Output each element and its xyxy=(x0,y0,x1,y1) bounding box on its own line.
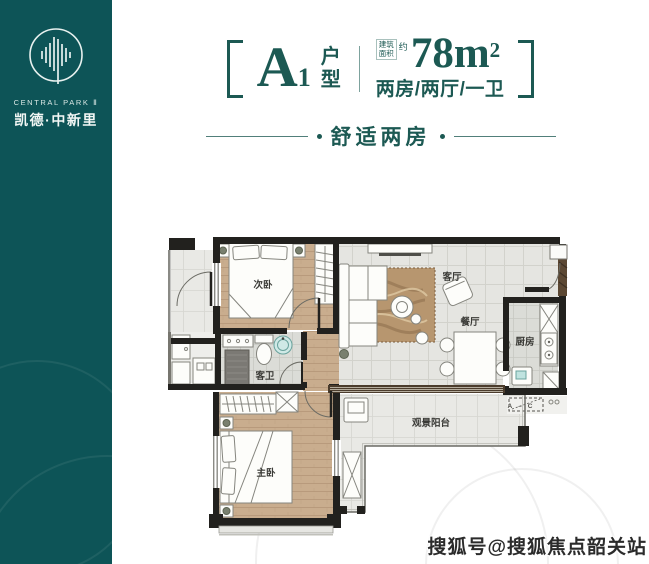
label-living-room: 客厅 xyxy=(441,271,462,283)
label-ac-platform: A–C xyxy=(507,403,538,410)
washbasin xyxy=(274,336,292,354)
brand-logo: CENTRAL PARK Ⅱ 凯德·中新里 xyxy=(0,26,112,130)
entry-door-panel xyxy=(550,245,567,259)
plant-icon xyxy=(223,420,230,427)
brand-name-en: CENTRAL PARK Ⅱ xyxy=(0,98,112,107)
label-kitchen: 厨房 xyxy=(515,336,534,348)
tagline-dot-right xyxy=(440,134,445,139)
unit-title-row: A1 户型 建筑面积 约 78m2 两房/两厅/一卫 xyxy=(112,36,649,101)
plant-icon xyxy=(223,508,230,515)
brand-band: CENTRAL PARK Ⅱ 凯德·中新里 xyxy=(0,0,112,564)
dining-chair xyxy=(440,338,454,352)
area-row: 建筑面积 约 78m2 xyxy=(376,36,505,71)
tv-console xyxy=(368,244,432,253)
area-approx-label: 约 xyxy=(399,40,408,53)
page: CENTRAL PARK Ⅱ 凯德·中新里 A1 户型 建筑面积 约 78m2 … xyxy=(0,0,649,564)
balcony-sliding-door xyxy=(328,385,505,393)
tagline-dot-left xyxy=(317,134,322,139)
header-divider xyxy=(359,46,360,92)
unit-type-label: 户型 xyxy=(319,46,343,91)
label-view-balcony: 观景阳台 xyxy=(411,417,451,429)
label-secondary-bedroom: 次卧 xyxy=(253,279,273,291)
room-spec: 两房/两厅/一卫 xyxy=(376,74,505,101)
side-stool xyxy=(416,332,428,344)
plant-icon xyxy=(220,247,227,254)
tv xyxy=(379,253,421,256)
tagline-rule-left xyxy=(206,136,308,137)
tagline-row: 舒适两房 xyxy=(112,121,649,151)
dining-table xyxy=(454,332,496,384)
master-bedroom-furniture xyxy=(220,392,298,517)
stove xyxy=(541,333,557,364)
toilet xyxy=(255,335,273,365)
bed xyxy=(220,431,292,503)
right-bracket-decoration xyxy=(518,40,534,98)
plant-icon xyxy=(340,350,349,359)
unit-index: 1 xyxy=(298,63,311,92)
left-bracket-decoration xyxy=(227,40,243,98)
washing-machine xyxy=(193,358,215,384)
tagline-text: 舒适两房 xyxy=(331,121,431,151)
area-value: 78m2 xyxy=(411,36,500,71)
wardrobe xyxy=(315,244,335,304)
plant-icon xyxy=(296,247,303,254)
dining-chair xyxy=(440,362,454,376)
area-superscript: 2 xyxy=(490,38,501,62)
entry-door xyxy=(525,287,549,292)
floor-plan-drawing: 次卧 客厅 餐厅 厨房 客卫 主卧 观景阳台 A–C xyxy=(163,228,603,538)
area-prefix-label: 建筑面积 xyxy=(376,39,397,60)
brand-name-cn: 凯德·中新里 xyxy=(0,110,112,130)
unit-header: A1 户型 建筑面积 约 78m2 两房/两厅/一卫 舒适两房 xyxy=(112,0,649,151)
label-dining-room: 餐厅 xyxy=(459,316,480,328)
label-guest-bathroom: 客卫 xyxy=(254,370,275,382)
watermark: 搜狐号@搜狐焦点韶关站 xyxy=(427,532,647,559)
brand-emblem-icon xyxy=(24,26,88,88)
wardrobe xyxy=(220,394,276,414)
coffee-table xyxy=(391,296,413,318)
unit-name: A1 xyxy=(257,42,311,94)
area-block: 建筑面积 约 78m2 两房/两厅/一卫 xyxy=(376,36,505,101)
unit-letter: A xyxy=(257,36,298,99)
tagline-rule-right xyxy=(454,136,556,137)
label-master-bedroom: 主卧 xyxy=(256,467,276,479)
floor-plan: 次卧 客厅 餐厅 厨房 客卫 主卧 观景阳台 A–C xyxy=(163,228,603,538)
bay-window-sill xyxy=(219,526,333,533)
